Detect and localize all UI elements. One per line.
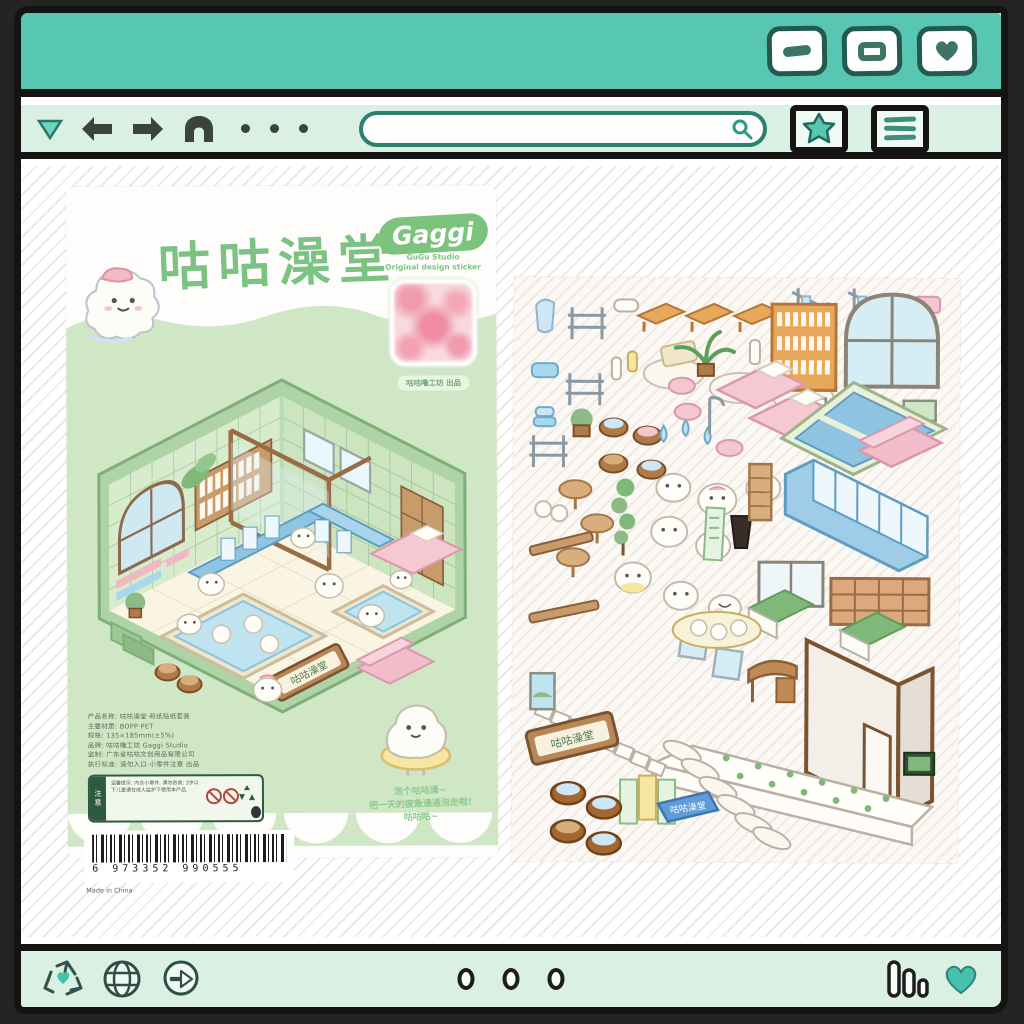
bookmark-button[interactable] bbox=[790, 105, 848, 153]
nav-bar bbox=[21, 105, 1001, 159]
sticker-sheet[interactable]: 咕咕澡堂 bbox=[512, 277, 961, 863]
dot-icon bbox=[270, 124, 279, 133]
sticker-portrait-frame bbox=[530, 673, 554, 709]
sticker-sheet-art: 咕咕澡堂 bbox=[512, 277, 961, 863]
bottom-bar bbox=[21, 944, 1001, 1007]
sticker-vanity-desk bbox=[748, 661, 796, 702]
heart-icon bbox=[932, 38, 962, 65]
recycle-heart-icon[interactable] bbox=[41, 958, 85, 1000]
dot-icon bbox=[241, 124, 250, 133]
care-icons bbox=[204, 782, 262, 823]
sticker-tall-shelf bbox=[749, 464, 771, 520]
product-info: 产品名称: 咕咕澡堂·和纸贴纸套装 主要材质: BOPP·PET 规格: 135… bbox=[88, 712, 278, 770]
forward-arrow-icon[interactable] bbox=[131, 116, 165, 142]
product-package-cover[interactable]: 咕咕澡堂 Gaggi GuGu Studio Original design s… bbox=[66, 185, 498, 858]
bathhouse-illustration: 咕咕澡堂 bbox=[70, 371, 493, 714]
barcode-bars bbox=[92, 834, 286, 863]
package-blurb: 泡个咕咕澡~ 把一天的疲惫通通泡走啦! 咕咕咕~ bbox=[368, 784, 473, 827]
magnifier-icon[interactable] bbox=[731, 118, 753, 140]
warning-label: 注意 bbox=[90, 777, 106, 821]
sticker-arched-window bbox=[846, 294, 938, 386]
nav-dots bbox=[241, 124, 308, 133]
page-content: 咕咕澡堂 Gaggi GuGu Studio Original design s… bbox=[21, 166, 1001, 937]
info-line: 执行标准: 请勿入口·小零件注意 出品 bbox=[88, 760, 278, 770]
sticker-wooden-buckets bbox=[599, 418, 665, 478]
bookmark-star-icon bbox=[801, 112, 837, 146]
page-dot-icon bbox=[458, 968, 475, 990]
sticker-milk-bottle bbox=[750, 340, 760, 364]
home-icon[interactable] bbox=[182, 115, 216, 143]
dot-icon bbox=[299, 124, 308, 133]
minimize-button[interactable] bbox=[767, 25, 828, 76]
mascot-bath-blob bbox=[80, 258, 164, 350]
dash-icon bbox=[783, 45, 812, 58]
sticker-bottles bbox=[612, 351, 637, 379]
maximize-button[interactable] bbox=[842, 25, 903, 76]
search-input[interactable] bbox=[373, 120, 731, 137]
dropdown-triangle-icon[interactable] bbox=[37, 118, 63, 140]
page-dot-icon bbox=[503, 968, 520, 990]
sticker-green-banner bbox=[704, 507, 725, 560]
made-in-label: Made in China bbox=[86, 887, 132, 895]
sticker-benches bbox=[638, 304, 780, 333]
sticker-sample-thumbnail bbox=[389, 278, 477, 366]
sticker-soap-bar bbox=[614, 299, 638, 311]
sticker-towel-hanger-blob bbox=[536, 300, 554, 333]
back-arrow-icon[interactable] bbox=[80, 116, 114, 142]
brand-logo: Gaggi bbox=[377, 212, 489, 255]
sticker-chick bbox=[535, 501, 567, 521]
sticker-barrels bbox=[551, 782, 621, 854]
sticker-water-drops bbox=[661, 420, 711, 444]
equalizer-icon[interactable] bbox=[887, 958, 931, 1000]
bottom-right-icons bbox=[887, 958, 981, 1000]
warning-box: 注意 温馨提示: 内含小零件, 请勿吞食; 3岁以下儿童请在成人监护下使用本产品… bbox=[88, 774, 264, 823]
sticker-fence bbox=[568, 307, 606, 339]
globe-icon[interactable] bbox=[101, 958, 143, 1000]
menu-icon bbox=[882, 114, 918, 144]
page-dot-icon bbox=[548, 968, 565, 990]
sticker-topiary-plant bbox=[611, 478, 635, 555]
sticker-bench-plank bbox=[529, 531, 600, 623]
brand-block: Gaggi GuGu Studio Original design sticke… bbox=[378, 215, 489, 390]
sticker-tv-screen bbox=[904, 753, 934, 775]
sticker-round-tables bbox=[557, 480, 613, 577]
sticker-shower-stand bbox=[710, 398, 724, 434]
warning-text: 温馨提示: 内含小零件, 请勿吞食; 3岁以下儿童请在成人监护下使用本产品. bbox=[106, 776, 204, 820]
menu-button[interactable] bbox=[871, 105, 929, 153]
forward-circle-icon[interactable] bbox=[159, 957, 203, 1001]
sticker-sign-board: 咕咕澡堂 bbox=[525, 711, 619, 765]
search-bar[interactable] bbox=[359, 111, 767, 147]
barcode-digits: 6 973352 990555 bbox=[92, 863, 286, 875]
window-controls bbox=[767, 26, 977, 76]
brand-sub2: Original design sticker bbox=[378, 262, 488, 272]
favorite-button[interactable] bbox=[917, 25, 978, 76]
title-bar bbox=[21, 13, 1001, 97]
sticker-blue-sponge bbox=[532, 363, 558, 377]
page-dots bbox=[458, 968, 565, 990]
barcode: 6 973352 990555 bbox=[84, 830, 294, 883]
square-icon bbox=[858, 41, 886, 60]
browser-window: 咕咕澡堂 Gaggi GuGu Studio Original design s… bbox=[14, 6, 1008, 1014]
sticker-potted-plant bbox=[571, 408, 593, 436]
bottom-left-icons bbox=[41, 957, 203, 1001]
sticker-bun-tray bbox=[673, 612, 761, 648]
swim-ring-blob bbox=[368, 693, 464, 779]
heart-icon[interactable] bbox=[941, 961, 981, 997]
sticker-blue-towel-stack bbox=[534, 407, 556, 426]
